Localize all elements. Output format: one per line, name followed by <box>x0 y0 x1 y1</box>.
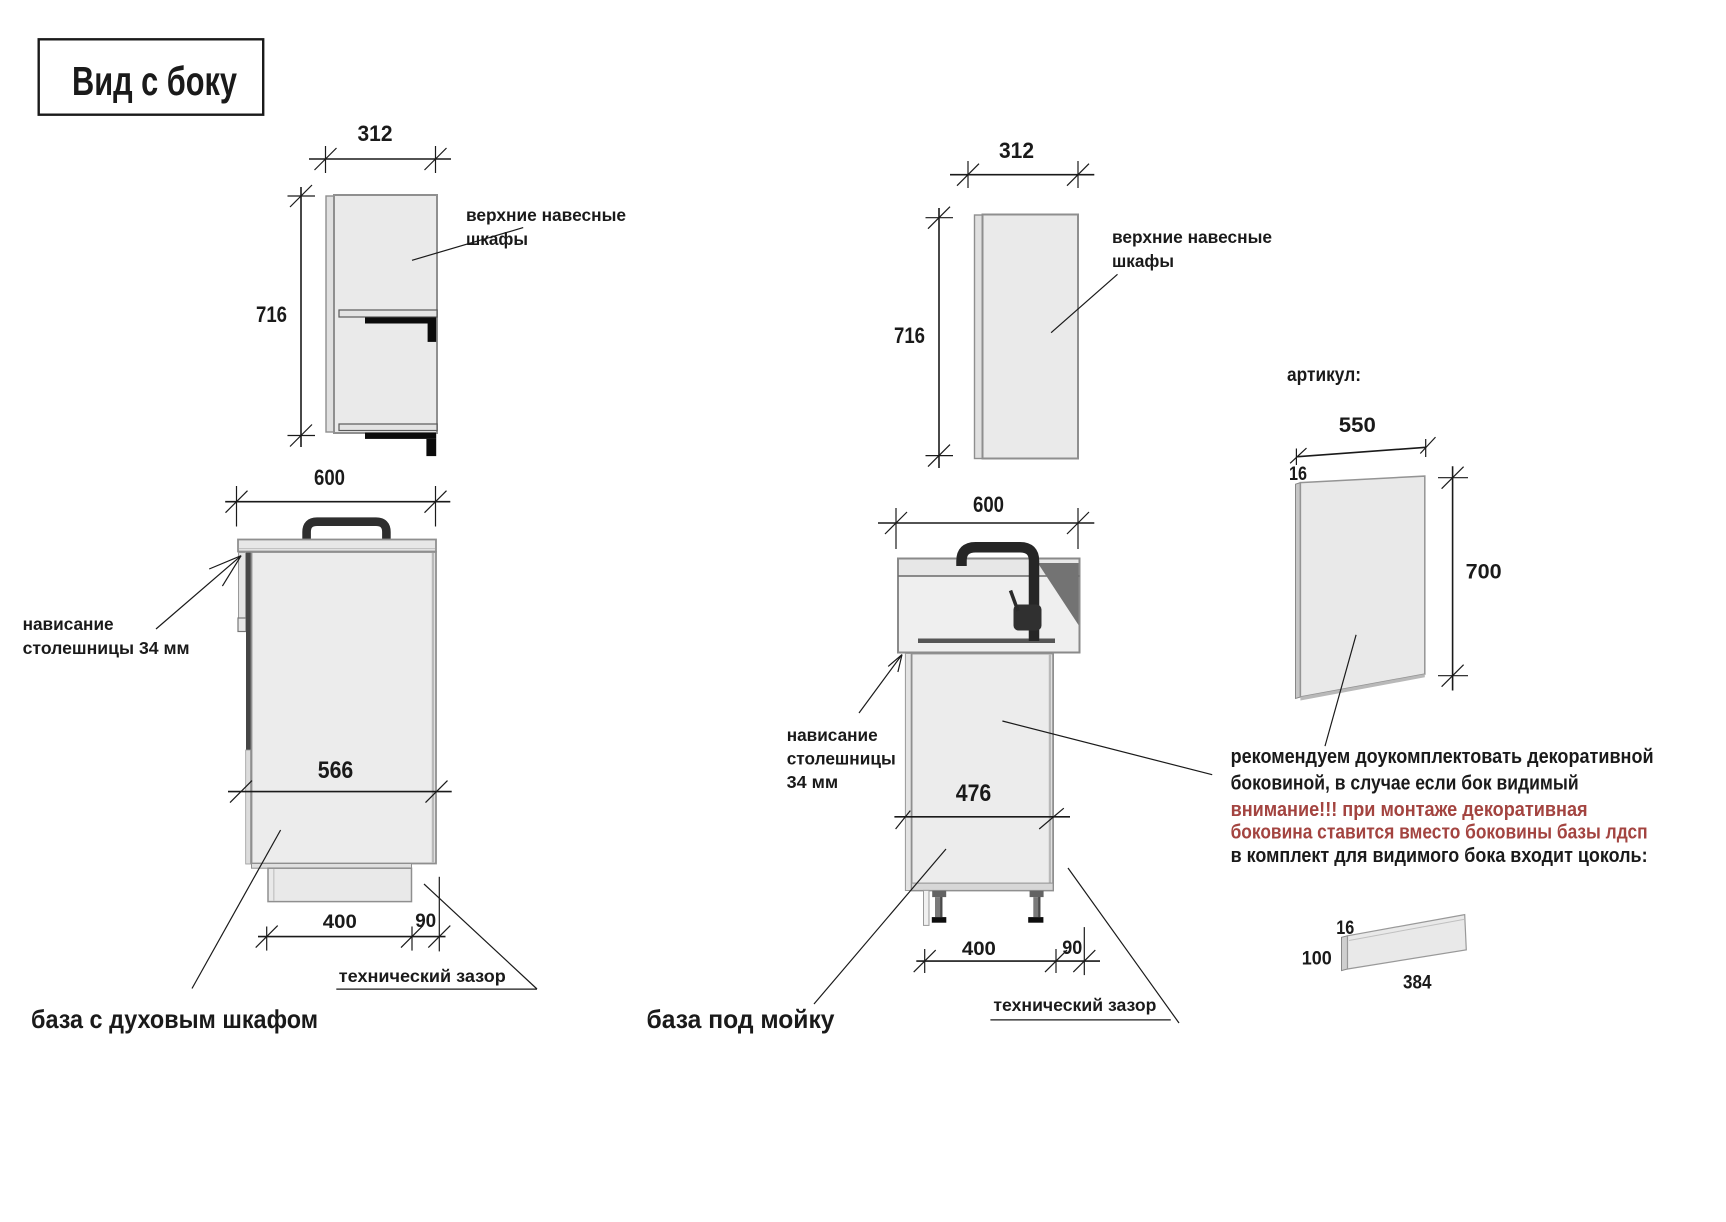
svg-text:в комплект для видимого бока в: в комплект для видимого бока входит цоко… <box>1231 845 1648 867</box>
svg-text:Вид с боку: Вид с боку <box>72 58 237 104</box>
svg-text:нависание: нависание <box>23 614 114 634</box>
svg-text:384: 384 <box>1403 973 1432 994</box>
svg-text:16: 16 <box>1336 918 1354 939</box>
svg-text:600: 600 <box>314 465 345 490</box>
svg-text:верхние навесные: верхние навесные <box>1112 227 1272 247</box>
svg-text:100: 100 <box>1302 949 1332 970</box>
svg-text:боковина ставится вместо боков: боковина ставится вместо боковины базы л… <box>1231 822 1648 844</box>
svg-text:шкафы: шкафы <box>1112 251 1174 271</box>
svg-text:технический зазор: технический зазор <box>339 966 506 986</box>
svg-text:верхние навесные: верхние навесные <box>466 205 626 225</box>
svg-text:550: 550 <box>1339 414 1376 437</box>
svg-text:312: 312 <box>999 138 1034 163</box>
svg-text:312: 312 <box>358 121 393 146</box>
svg-text:шкафы: шкафы <box>466 229 528 249</box>
svg-text:600: 600 <box>973 492 1004 517</box>
svg-text:476: 476 <box>956 780 992 807</box>
svg-text:артикул:: артикул: <box>1287 365 1361 386</box>
svg-text:90: 90 <box>415 911 436 932</box>
svg-text:нависание: нависание <box>787 725 878 745</box>
svg-text:внимание!!! при монтаже декора: внимание!!! при монтаже декоративная <box>1231 799 1588 821</box>
svg-text:база под мойку: база под мойку <box>647 1004 836 1034</box>
svg-text:столешницы: столешницы <box>787 749 896 769</box>
svg-text:716: 716 <box>894 323 925 348</box>
svg-text:боковиной, в случае если бок в: боковиной, в случае если бок видимый <box>1231 773 1579 795</box>
svg-text:рекомендуем доукомплектовать д: рекомендуем доукомплектовать декоративно… <box>1231 746 1654 768</box>
svg-text:716: 716 <box>256 302 287 327</box>
svg-text:700: 700 <box>1466 561 1502 584</box>
svg-text:база с духовым шкафом: база с духовым шкафом <box>31 1004 318 1034</box>
svg-text:400: 400 <box>323 912 357 933</box>
svg-text:технический зазор: технический зазор <box>993 995 1156 1015</box>
svg-text:34 мм: 34 мм <box>787 772 839 792</box>
svg-text:566: 566 <box>318 757 354 784</box>
svg-text:столешницы 34 мм: столешницы 34 мм <box>23 638 190 658</box>
svg-text:400: 400 <box>962 939 996 960</box>
svg-text:90: 90 <box>1062 938 1082 959</box>
